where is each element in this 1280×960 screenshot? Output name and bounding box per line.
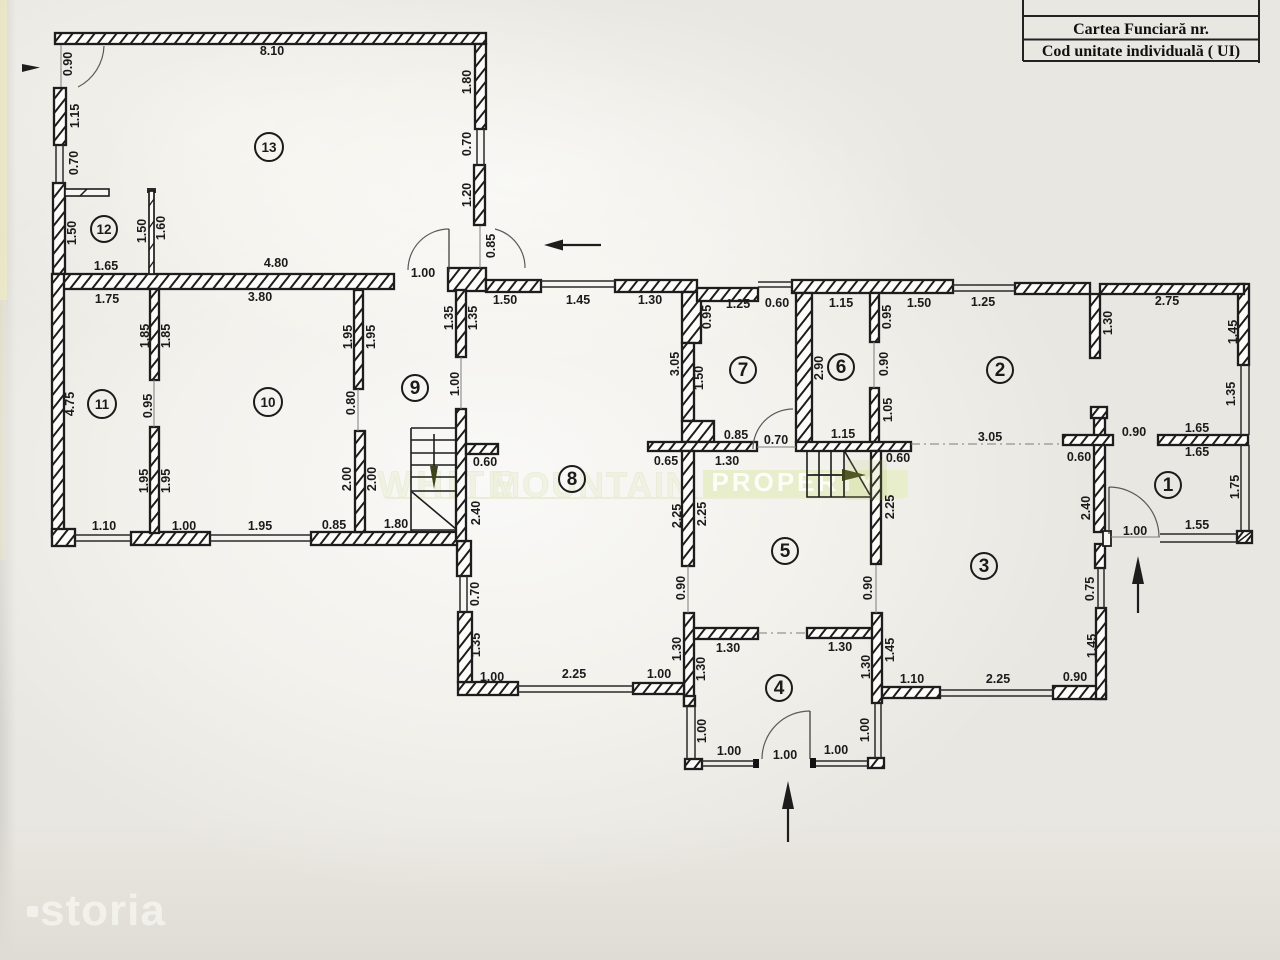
svg-text:0.60: 0.60 xyxy=(1067,450,1091,464)
svg-text:2.00: 2.00 xyxy=(365,467,379,491)
svg-text:1.50: 1.50 xyxy=(493,293,517,307)
svg-text:0.95: 0.95 xyxy=(880,305,894,329)
svg-text:11: 11 xyxy=(95,397,110,412)
svg-text:9: 9 xyxy=(410,378,421,399)
svg-text:5: 5 xyxy=(780,541,791,562)
svg-text:1.95: 1.95 xyxy=(159,469,173,493)
svg-text:2.25: 2.25 xyxy=(986,672,1010,686)
svg-text:1.00: 1.00 xyxy=(172,519,196,533)
svg-text:1.95: 1.95 xyxy=(248,519,272,533)
svg-text:0.90: 0.90 xyxy=(61,52,75,76)
svg-text:0.85: 0.85 xyxy=(724,428,748,442)
svg-text:0.75: 0.75 xyxy=(1083,577,1097,601)
svg-text:0.85: 0.85 xyxy=(484,234,498,258)
svg-text:1.65: 1.65 xyxy=(1185,421,1209,435)
svg-text:1.45: 1.45 xyxy=(1226,320,1240,344)
svg-text:1.15: 1.15 xyxy=(68,104,82,128)
svg-text:7: 7 xyxy=(738,360,749,381)
svg-text:0.90: 0.90 xyxy=(877,352,891,376)
svg-text:2.40: 2.40 xyxy=(1079,496,1093,520)
svg-text:1.50: 1.50 xyxy=(692,366,706,390)
svg-text:1.15: 1.15 xyxy=(829,296,853,310)
svg-text:1.60: 1.60 xyxy=(154,216,168,240)
svg-text:4.75: 4.75 xyxy=(63,392,77,416)
svg-text:1.30: 1.30 xyxy=(716,641,740,655)
svg-text:1.00: 1.00 xyxy=(448,372,462,396)
svg-text:1.95: 1.95 xyxy=(364,325,378,349)
svg-text:1.50: 1.50 xyxy=(907,296,931,310)
svg-text:0.70: 0.70 xyxy=(468,582,482,606)
svg-text:Cartea Funciară nr.: Cartea Funciară nr. xyxy=(1073,21,1209,38)
svg-text:1.10: 1.10 xyxy=(92,519,116,533)
svg-text:1.00: 1.00 xyxy=(647,667,671,681)
svg-text:3.80: 3.80 xyxy=(248,290,272,304)
svg-text:2.25: 2.25 xyxy=(883,495,897,519)
svg-text:1.35: 1.35 xyxy=(469,633,483,657)
svg-text:0.85: 0.85 xyxy=(322,518,346,532)
svg-text:3.05: 3.05 xyxy=(978,430,1002,444)
svg-text:2.25: 2.25 xyxy=(670,504,684,528)
svg-text:1.45: 1.45 xyxy=(883,638,897,662)
svg-text:3: 3 xyxy=(979,556,990,577)
svg-text:0.80: 0.80 xyxy=(344,391,358,415)
svg-text:8.10: 8.10 xyxy=(260,44,284,58)
svg-text:4: 4 xyxy=(774,678,785,699)
svg-text:8: 8 xyxy=(567,469,578,490)
svg-text:0.70: 0.70 xyxy=(460,132,474,156)
svg-text:1.00: 1.00 xyxy=(858,718,872,742)
svg-text:MOUNTAIN: MOUNTAIN xyxy=(491,466,693,505)
svg-text:1.55: 1.55 xyxy=(1185,518,1209,532)
svg-text:1.00: 1.00 xyxy=(695,719,709,743)
svg-text:2: 2 xyxy=(995,360,1006,381)
svg-text:4.80: 4.80 xyxy=(264,256,288,270)
svg-text:1.30: 1.30 xyxy=(694,657,708,681)
svg-text:1.35: 1.35 xyxy=(466,306,480,330)
svg-text:0.70: 0.70 xyxy=(764,433,788,447)
svg-text:1.65: 1.65 xyxy=(94,259,118,273)
svg-text:1.95: 1.95 xyxy=(137,469,151,493)
svg-text:0.65: 0.65 xyxy=(654,454,678,468)
svg-text:1.45: 1.45 xyxy=(1085,634,1099,658)
svg-text:0.90: 0.90 xyxy=(1122,425,1146,439)
svg-text:1.80: 1.80 xyxy=(384,517,408,531)
svg-text:12: 12 xyxy=(96,222,111,237)
svg-text:2.25: 2.25 xyxy=(695,502,709,526)
svg-text:1.00: 1.00 xyxy=(773,748,797,762)
svg-text:0.60: 0.60 xyxy=(886,451,910,465)
svg-text:6: 6 xyxy=(836,357,847,378)
svg-text:1.75: 1.75 xyxy=(95,292,119,306)
svg-text:1.00: 1.00 xyxy=(1123,524,1147,538)
svg-text:0.90: 0.90 xyxy=(861,576,875,600)
svg-text:1.25: 1.25 xyxy=(726,297,750,311)
svg-text:1.80: 1.80 xyxy=(460,70,474,94)
svg-text:2.40: 2.40 xyxy=(469,501,483,525)
svg-text:storia: storia xyxy=(40,886,166,935)
svg-text:1.30: 1.30 xyxy=(859,655,873,679)
svg-text:3.05: 3.05 xyxy=(668,352,682,376)
svg-text:0.70: 0.70 xyxy=(67,151,81,175)
svg-text:1.30: 1.30 xyxy=(1101,311,1115,335)
svg-text:1.00: 1.00 xyxy=(824,743,848,757)
svg-text:1.35: 1.35 xyxy=(1224,382,1238,406)
svg-text:1.25: 1.25 xyxy=(971,295,995,309)
svg-text:2.90: 2.90 xyxy=(812,356,826,380)
svg-text:1.30: 1.30 xyxy=(670,637,684,661)
svg-text:10: 10 xyxy=(260,395,275,410)
svg-text:1.75: 1.75 xyxy=(1228,475,1242,499)
svg-text:1.95: 1.95 xyxy=(341,325,355,349)
svg-text:1.05: 1.05 xyxy=(881,398,895,422)
svg-text:2.25: 2.25 xyxy=(562,667,586,681)
svg-text:0.60: 0.60 xyxy=(473,455,497,469)
svg-text:1: 1 xyxy=(1163,475,1174,496)
svg-text:2.00: 2.00 xyxy=(340,467,354,491)
svg-text:Cod unitate individuală ( UI): Cod unitate individuală ( UI) xyxy=(1042,43,1240,60)
svg-text:0.90: 0.90 xyxy=(1063,670,1087,684)
svg-text:1.30: 1.30 xyxy=(638,293,662,307)
svg-text:1.85: 1.85 xyxy=(138,324,152,348)
svg-text:1.10: 1.10 xyxy=(900,672,924,686)
svg-text:0.95: 0.95 xyxy=(141,394,155,418)
svg-text:1.15: 1.15 xyxy=(831,427,855,441)
svg-text:1.65: 1.65 xyxy=(1185,445,1209,459)
svg-text:1.00: 1.00 xyxy=(411,266,435,280)
svg-text:0.60: 0.60 xyxy=(765,296,789,310)
svg-text:13: 13 xyxy=(261,140,277,155)
svg-text:0.90: 0.90 xyxy=(674,576,688,600)
svg-text:1.00: 1.00 xyxy=(717,744,741,758)
svg-text:1.50: 1.50 xyxy=(65,221,79,245)
svg-text:1.00: 1.00 xyxy=(480,670,504,684)
svg-text:1.50: 1.50 xyxy=(135,219,149,243)
svg-text:0.95: 0.95 xyxy=(700,305,714,329)
svg-text:1.20: 1.20 xyxy=(460,183,474,207)
svg-text:1.30: 1.30 xyxy=(828,640,852,654)
svg-text:1.85: 1.85 xyxy=(159,324,173,348)
svg-text:1.35: 1.35 xyxy=(442,306,456,330)
svg-text:2.75: 2.75 xyxy=(1155,294,1179,308)
svg-text:1.30: 1.30 xyxy=(715,454,739,468)
svg-text:1.45: 1.45 xyxy=(566,293,590,307)
